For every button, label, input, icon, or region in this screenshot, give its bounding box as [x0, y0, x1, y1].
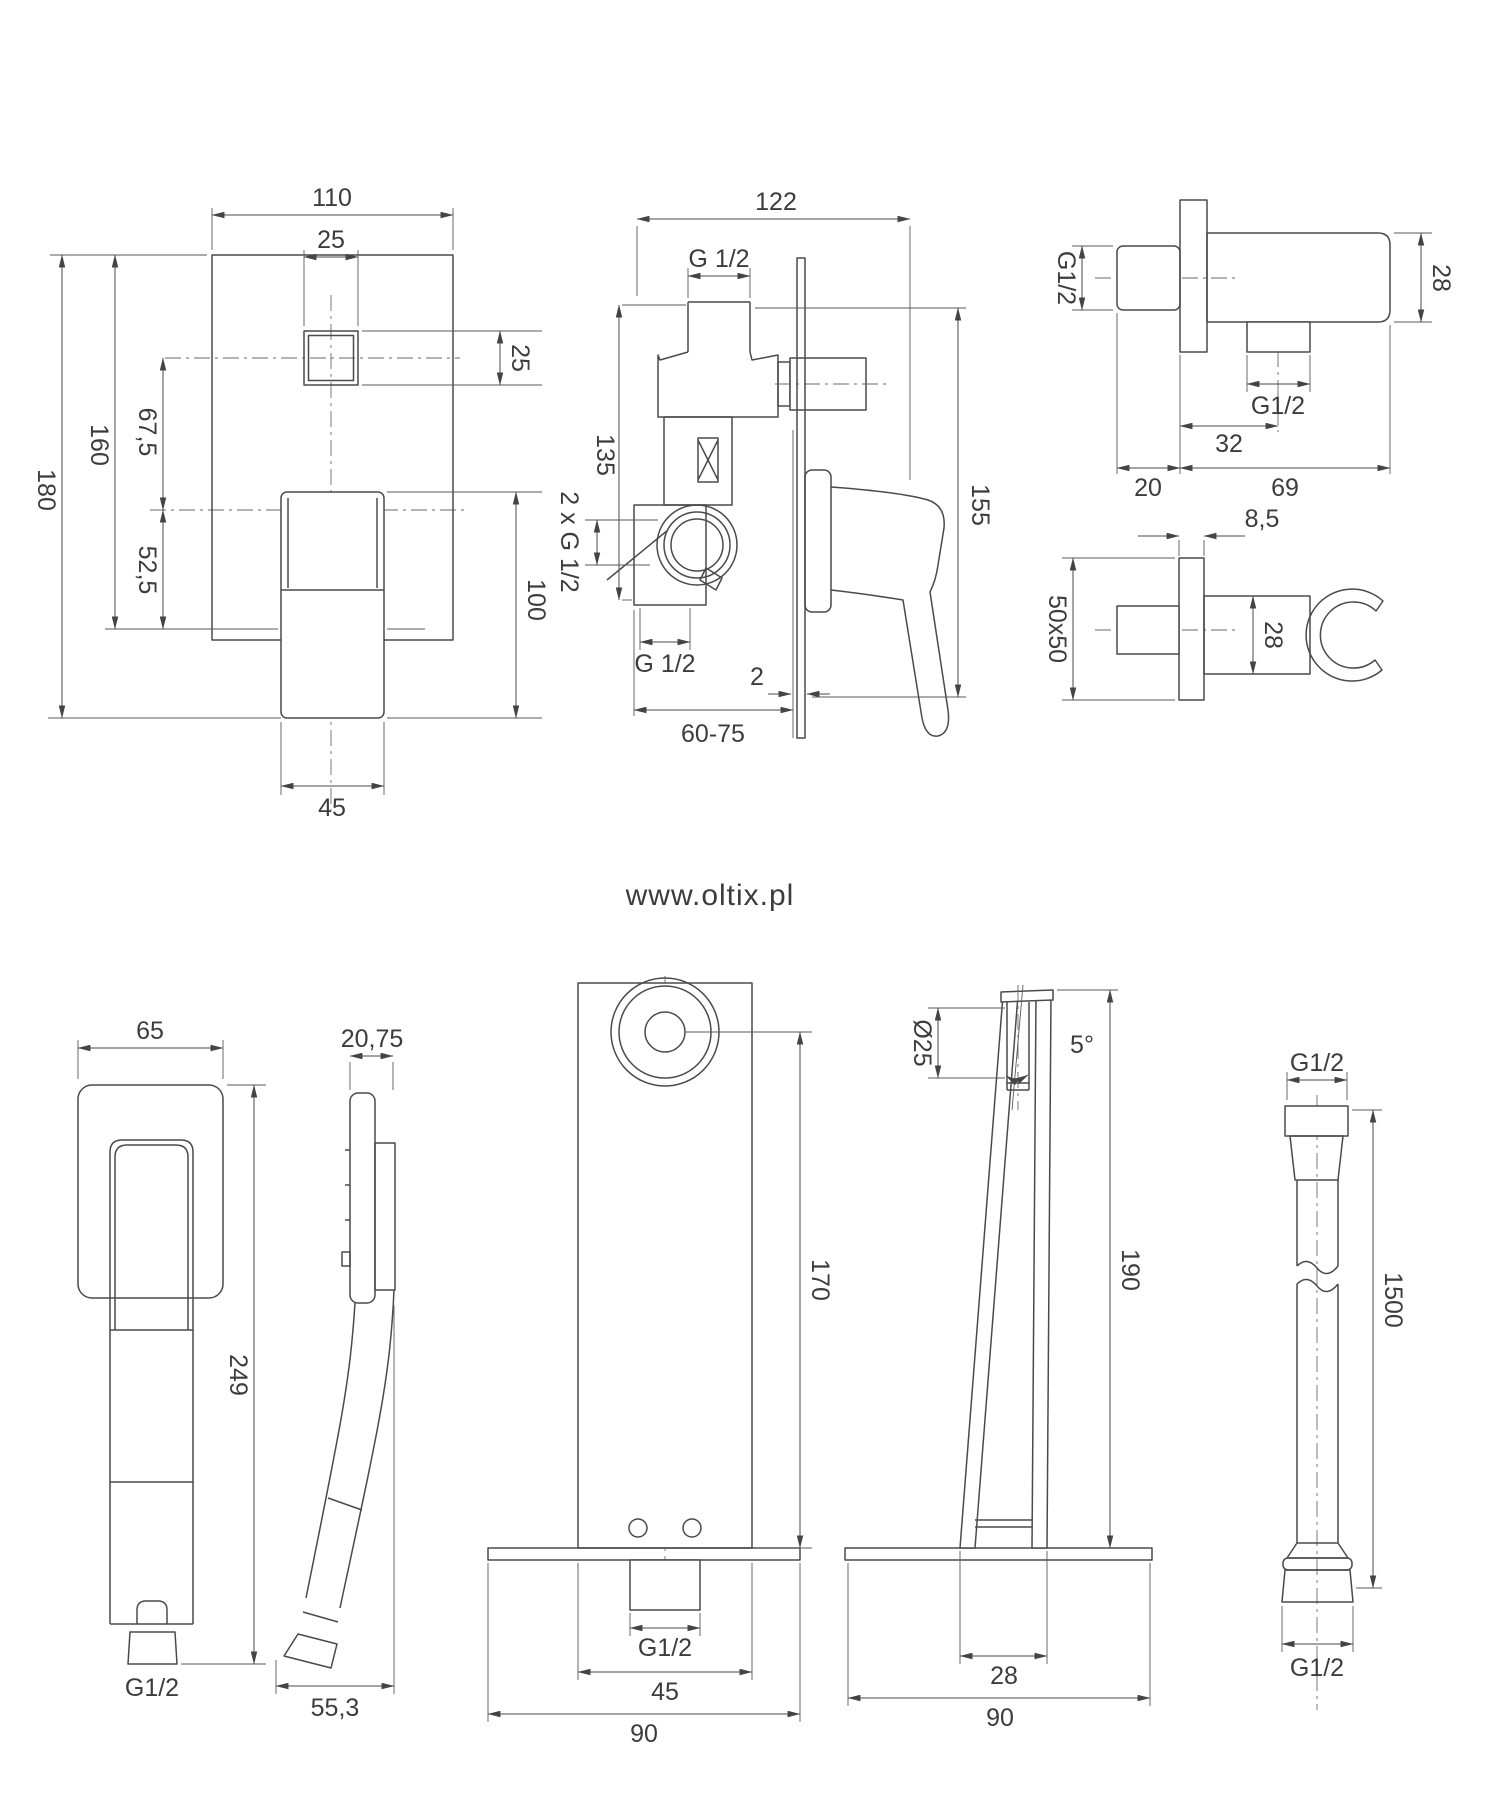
- dim-total-height-side-label: 155: [966, 484, 994, 526]
- shower-handle-front: [110, 1140, 193, 1624]
- mixer-handle-front: [281, 492, 384, 718]
- elbow-thread-stub: [1117, 246, 1180, 310]
- view-hose: G1/2 1500 G1/2: [1282, 1049, 1407, 1710]
- view-hand-shower: G1/2 65 249 20,75 55,3: [78, 1017, 403, 1722]
- view-shower-holder: 8,5 50x50 28: [1043, 505, 1383, 700]
- dim-shower-thread-label: G1/2: [125, 1674, 179, 1702]
- view-spout-side: 5° Ø25 190 28 90: [845, 985, 1152, 1732]
- spout-cap: [1001, 990, 1053, 1002]
- dim-elbow-offset-label: 32: [1215, 430, 1243, 458]
- view-mixer-side: 122 G 1/2 135 2 x G 1/2 G 1/2 2 60-75 15…: [555, 188, 994, 748]
- dim-elbow-stub-label: 20: [1134, 474, 1162, 502]
- holder-plate: [1179, 558, 1204, 700]
- hose-collar-ring: [1283, 1558, 1352, 1570]
- shower-handle-inner: [115, 1145, 188, 1330]
- valve-upper-body: [658, 352, 778, 417]
- outlet-port-bore: [671, 519, 723, 571]
- grip-thread-tip-side: [284, 1634, 337, 1668]
- holder-clip: [1306, 589, 1383, 681]
- holder-thread-stub: [1117, 606, 1179, 654]
- grip-side-right: [340, 1290, 394, 1608]
- dim-elbow-thread-in-label: G1/2: [1052, 251, 1080, 305]
- view-spout-front: 170 G1/2 45 90: [488, 976, 834, 1748]
- dim-knob-side-label: 25: [506, 344, 534, 372]
- view-mixer-front: 110 25 25 160 180 67,5 52,5 100 45: [32, 184, 550, 822]
- dim-outlet-thread-label: G 1/2: [634, 650, 695, 678]
- outlet-port-ring: [664, 512, 730, 578]
- dim-holder-height-label: 28: [1259, 621, 1287, 649]
- dim-elbow-length-label: 69: [1271, 474, 1299, 502]
- elbow-outlet-thread: [1247, 322, 1310, 352]
- dim-handle-height-label: 100: [522, 579, 550, 621]
- outlet-port-circle: [657, 505, 737, 585]
- holder-body: [1204, 596, 1310, 674]
- dim-hose-length-label: 1500: [1379, 1272, 1407, 1328]
- shower-head-side: [350, 1093, 375, 1303]
- grip-side-left: [306, 1303, 355, 1598]
- dim-outlet-diameter-label: Ø25: [908, 1019, 936, 1066]
- dim-hose-thread-top-label: G1/2: [1290, 1049, 1344, 1077]
- dim-total-height-label: 180: [32, 469, 60, 511]
- spec-sheet-page: 110 25 25 160 180 67,5 52,5 100 45: [0, 0, 1500, 1796]
- dim-holder-plate-label: 50x50: [1043, 595, 1071, 663]
- dim-side-plate-label: 90: [986, 1704, 1014, 1732]
- dim-angle-label: 5°: [1070, 1031, 1094, 1059]
- watermark-text: www.oltix.pl: [625, 879, 795, 912]
- technical-drawing-canvas: 110 25 25 160 180 67,5 52,5 100 45: [0, 0, 1500, 1796]
- dim-ports-label: 2 x G 1/2: [555, 491, 583, 592]
- dim-elbow-thread-out-label: G1/2: [1251, 392, 1305, 420]
- spout-plate-side: [845, 1548, 1152, 1560]
- dim-width-label: 110: [312, 184, 352, 212]
- hose-nut: [1285, 1106, 1348, 1136]
- dim-outlet-height-label: 170: [806, 1259, 834, 1301]
- spout-connector-thread: [630, 1560, 700, 1610]
- dim-holder-thickness-label: 8,5: [1245, 505, 1280, 533]
- inlet-pipe: [688, 302, 750, 352]
- shower-hook-nub: [342, 1252, 350, 1266]
- dim-head-width-label: 65: [136, 1017, 164, 1045]
- elbow-body: [1207, 233, 1390, 322]
- spout-column-front: [578, 983, 752, 1548]
- shower-thread-tip: [128, 1632, 177, 1664]
- dim-center-offset-label: 52,5: [133, 546, 161, 595]
- hose-break-top: [1297, 1261, 1338, 1273]
- spout-wall-right: [1032, 995, 1051, 1548]
- lever-handle-side: [831, 487, 949, 736]
- outlet-recess: [137, 1601, 167, 1624]
- dim-head-depth-label: 20,75: [341, 1025, 404, 1053]
- hose-cone-flare: [1287, 1543, 1348, 1558]
- dim-knob-offset-label: 67,5: [133, 408, 161, 457]
- elbow-flange: [1180, 200, 1207, 352]
- dim-shower-length-label: 249: [224, 1354, 252, 1396]
- dim-wall-gap-label: 2: [750, 663, 764, 691]
- dim-spout-height-label: 190: [1116, 1249, 1144, 1291]
- handle-boss-side: [805, 470, 831, 612]
- dim-spout-thread-label: G1/2: [638, 1634, 692, 1662]
- spout-plate-front: [488, 1548, 800, 1560]
- shower-head-back: [375, 1143, 395, 1290]
- dim-handle-width-label: 45: [318, 794, 346, 822]
- dim-spout-width-label: 45: [651, 1678, 679, 1706]
- escutcheon-plate-side: [797, 258, 805, 738]
- shower-head-front: [78, 1085, 223, 1298]
- dim-base-width-label: 28: [990, 1662, 1018, 1690]
- dim-mount-depth-label: 60-75: [681, 720, 745, 748]
- dim-elbow-height-label: 28: [1427, 264, 1455, 292]
- dim-depth-total-label: 55,3: [311, 1694, 360, 1722]
- dim-body-height-label: 135: [591, 434, 619, 476]
- hose-end-taper: [1282, 1570, 1353, 1602]
- dim-knob-label: 25: [317, 226, 345, 254]
- hose-break-bottom: [1297, 1279, 1338, 1291]
- view-wall-elbow: G1/2 28 G1/2 32 20 69: [1052, 200, 1455, 502]
- dim-depth-label: 122: [755, 188, 797, 216]
- dim-plate-height-label: 160: [85, 424, 113, 466]
- dim-inlet-thread-label: G 1/2: [688, 245, 749, 273]
- hose-ferrule: [1290, 1136, 1343, 1180]
- dim-hose-thread-bottom-label: G1/2: [1290, 1654, 1344, 1682]
- dim-spout-plate-label: 90: [630, 1720, 658, 1748]
